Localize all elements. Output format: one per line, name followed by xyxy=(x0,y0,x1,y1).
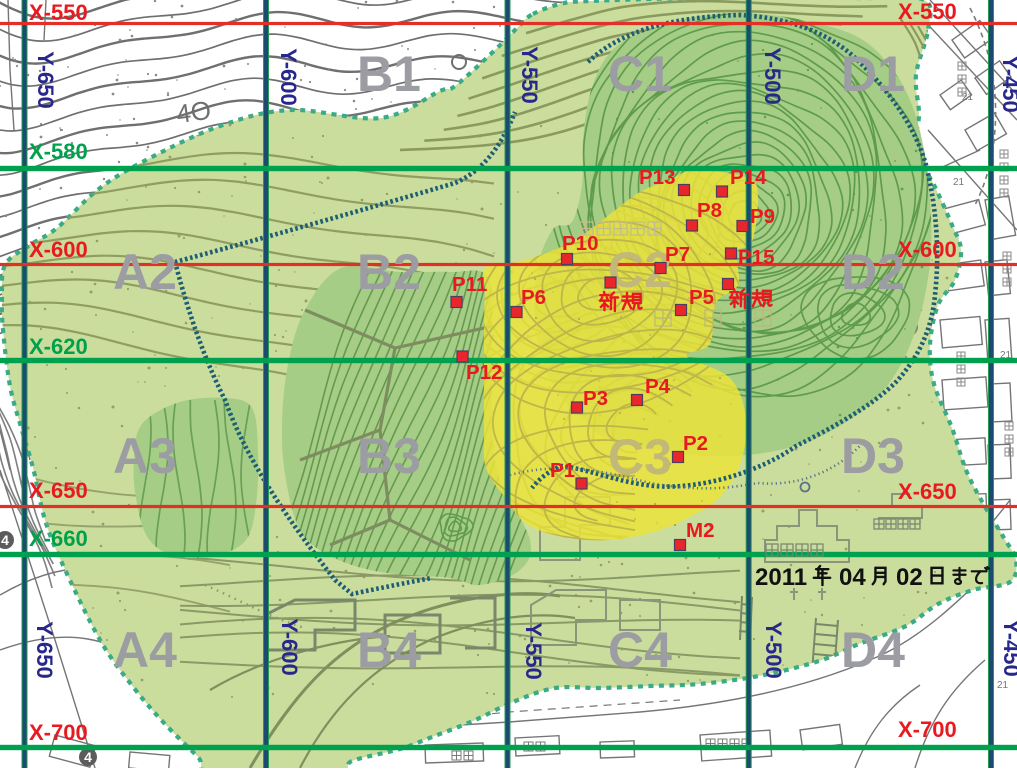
svg-text:Y-500: Y-500 xyxy=(760,47,785,105)
svg-text:X-650: X-650 xyxy=(898,479,957,504)
svg-text:Y-600: Y-600 xyxy=(277,618,302,676)
svg-text:04: 04 xyxy=(839,564,866,591)
svg-text:C4: C4 xyxy=(608,622,672,678)
svg-text:M2: M2 xyxy=(686,519,714,542)
svg-text:P13: P13 xyxy=(639,166,675,189)
svg-text:P15: P15 xyxy=(738,246,774,269)
svg-text:P7: P7 xyxy=(665,243,690,266)
svg-text:X-700: X-700 xyxy=(29,720,88,745)
svg-text:Y-500: Y-500 xyxy=(761,621,786,679)
svg-text:Y-550: Y-550 xyxy=(521,622,546,680)
svg-text:X-550: X-550 xyxy=(898,0,957,24)
svg-text:21: 21 xyxy=(997,680,1009,691)
svg-text:P6: P6 xyxy=(521,286,546,309)
svg-text:4O: 4O xyxy=(174,95,213,130)
svg-text:21: 21 xyxy=(953,177,965,188)
svg-text:D3: D3 xyxy=(841,428,905,484)
svg-text:X-600: X-600 xyxy=(29,237,88,262)
svg-text:D1: D1 xyxy=(841,46,905,102)
svg-text:D2: D2 xyxy=(841,244,905,300)
svg-text:4: 4 xyxy=(84,749,92,765)
svg-text:B2: B2 xyxy=(357,244,421,300)
svg-text:P12: P12 xyxy=(466,361,502,384)
svg-text:C3: C3 xyxy=(608,429,672,485)
svg-text:X-550: X-550 xyxy=(29,0,88,25)
svg-text:4: 4 xyxy=(1,532,9,548)
svg-text:P5: P5 xyxy=(689,286,714,309)
svg-text:Y-550: Y-550 xyxy=(517,46,542,104)
svg-text:P8: P8 xyxy=(697,199,722,222)
svg-text:P9: P9 xyxy=(750,205,775,228)
svg-text:X-660: X-660 xyxy=(29,526,88,551)
svg-text:P14: P14 xyxy=(730,166,767,189)
svg-text:X-700: X-700 xyxy=(898,717,957,742)
svg-text:2011: 2011 xyxy=(755,564,807,591)
svg-text:P11: P11 xyxy=(452,273,487,296)
svg-text:Y-650: Y-650 xyxy=(33,51,58,109)
svg-text:X-650: X-650 xyxy=(29,478,88,503)
svg-text:21: 21 xyxy=(962,92,974,103)
svg-text:P3: P3 xyxy=(583,387,608,410)
svg-text:C1: C1 xyxy=(608,46,672,102)
svg-text:Y-450: Y-450 xyxy=(999,619,1017,677)
svg-text:P2: P2 xyxy=(683,432,708,455)
svg-text:X-620: X-620 xyxy=(29,334,88,359)
svg-text:X-580: X-580 xyxy=(29,139,88,164)
svg-text:B3: B3 xyxy=(357,428,421,484)
svg-text:A4: A4 xyxy=(113,622,177,678)
svg-text:Y-650: Y-650 xyxy=(32,621,57,679)
svg-text:D4: D4 xyxy=(841,622,905,678)
svg-text:Y-600: Y-600 xyxy=(276,48,301,106)
svg-text:A2: A2 xyxy=(113,244,177,300)
svg-text:B1: B1 xyxy=(357,46,421,102)
svg-text:02: 02 xyxy=(896,564,923,591)
svg-text:B4: B4 xyxy=(357,622,421,678)
svg-text:Y-450: Y-450 xyxy=(998,55,1017,113)
svg-text:P4: P4 xyxy=(645,375,671,398)
svg-text:A3: A3 xyxy=(113,428,177,484)
svg-text:X-600: X-600 xyxy=(898,237,957,262)
svg-text:P1: P1 xyxy=(550,459,575,482)
